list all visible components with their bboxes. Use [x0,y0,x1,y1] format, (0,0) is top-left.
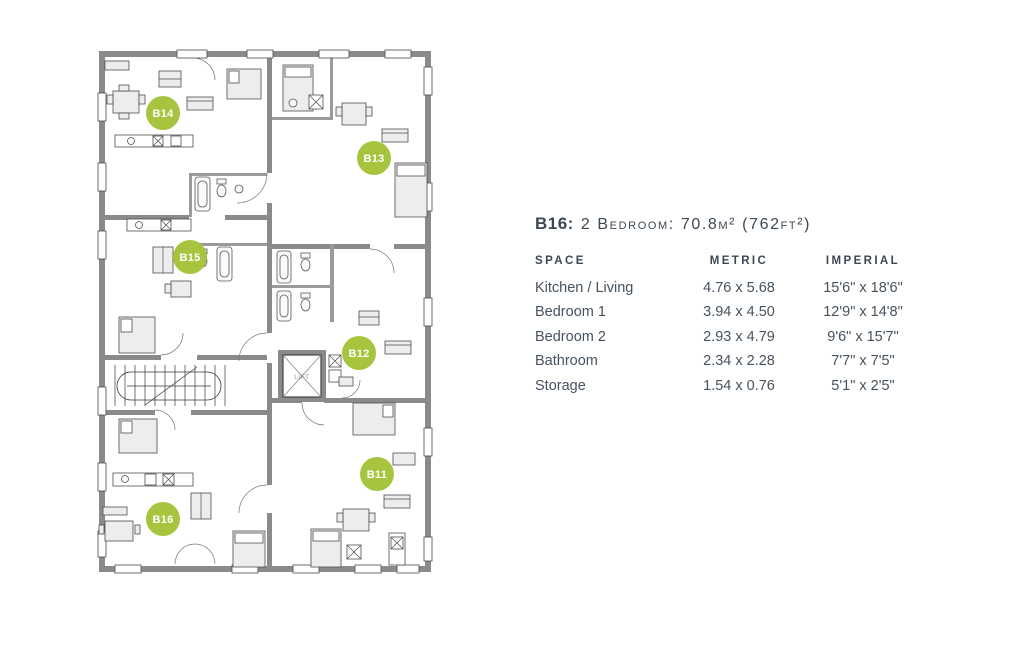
table-cell-imperial: 15'6" x 18'6" [795,276,931,300]
table-cell-metric: 3.94 x 4.50 [683,300,795,324]
unit-marker-b13-label: B13 [363,153,384,165]
furniture-b13 [283,65,427,217]
dimensions-table: SPACE METRIC IMPERIAL Kitchen / Living 4… [535,255,937,398]
unit-marker-b11-label: B11 [367,469,387,481]
unit-marker-b16-label: B16 [152,514,173,526]
unit-marker-b14[interactable]: B14 [146,96,180,130]
furniture-bottom-bedrooms [233,529,341,567]
unit-marker-b12-label: B12 [348,348,369,360]
table-cell-space: Bedroom 1 [535,300,683,324]
table-cell-metric: 2.34 x 2.28 [683,349,795,373]
col-header-imperial: IMPERIAL [795,255,931,276]
unit-marker-b16[interactable]: B16 [146,502,180,536]
unit-marker-b15-label: B15 [179,252,200,264]
table-cell-imperial: 7'7" x 7'5" [795,349,931,373]
windows [98,50,432,573]
unit-marker-b12[interactable]: B12 [342,336,376,370]
furniture-b15 [119,219,191,353]
lift-label: LIFT [294,375,310,381]
furniture-b14 [105,61,261,147]
unit-info-panel: B16:2 Bedroom: 70.8m² (762ft²) SPACE MET… [535,214,937,398]
col-header-space: SPACE [535,255,683,276]
table-cell-imperial: 9'6" x 15'7" [795,325,931,349]
unit-marker-b15[interactable]: B15 [173,240,207,274]
table-cell-imperial: 5'1" x 2'5" [795,374,931,398]
table-cell-space: Kitchen / Living [535,276,683,300]
unit-marker-b13[interactable]: B13 [357,141,391,175]
table-cell-imperial: 12'9" x 14'8" [795,300,931,324]
unit-title-code: B16: [535,214,574,233]
unit-title-desc: 2 Bedroom: 70.8m² (762ft²) [581,216,811,233]
unit-marker-b14-label: B14 [152,108,174,120]
unit-title: B16:2 Bedroom: 70.8m² (762ft²) [535,214,937,234]
lift-icon: LIFT [283,355,321,397]
table-cell-metric: 2.93 x 4.79 [683,325,795,349]
stairs-icon [115,365,225,406]
col-header-metric: METRIC [683,255,795,276]
outer-walls [99,51,431,572]
table-cell-space: Bathroom [535,349,683,373]
door-arcs [155,58,394,564]
table-cell-space: Storage [535,374,683,398]
floor-plan: LIFT [97,45,433,577]
table-cell-metric: 4.76 x 5.68 [683,276,795,300]
unit-marker-b11[interactable]: B11 [360,457,394,491]
table-cell-space: Bedroom 2 [535,325,683,349]
table-cell-metric: 1.54 x 0.76 [683,374,795,398]
